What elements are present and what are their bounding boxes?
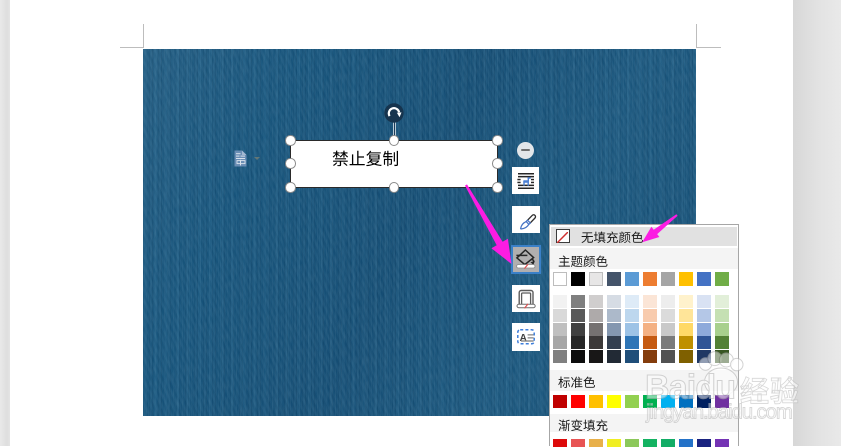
- svg-text:jingyan.baidu.com: jingyan.baidu.com: [645, 401, 793, 424]
- svg-text:A: A: [520, 333, 527, 344]
